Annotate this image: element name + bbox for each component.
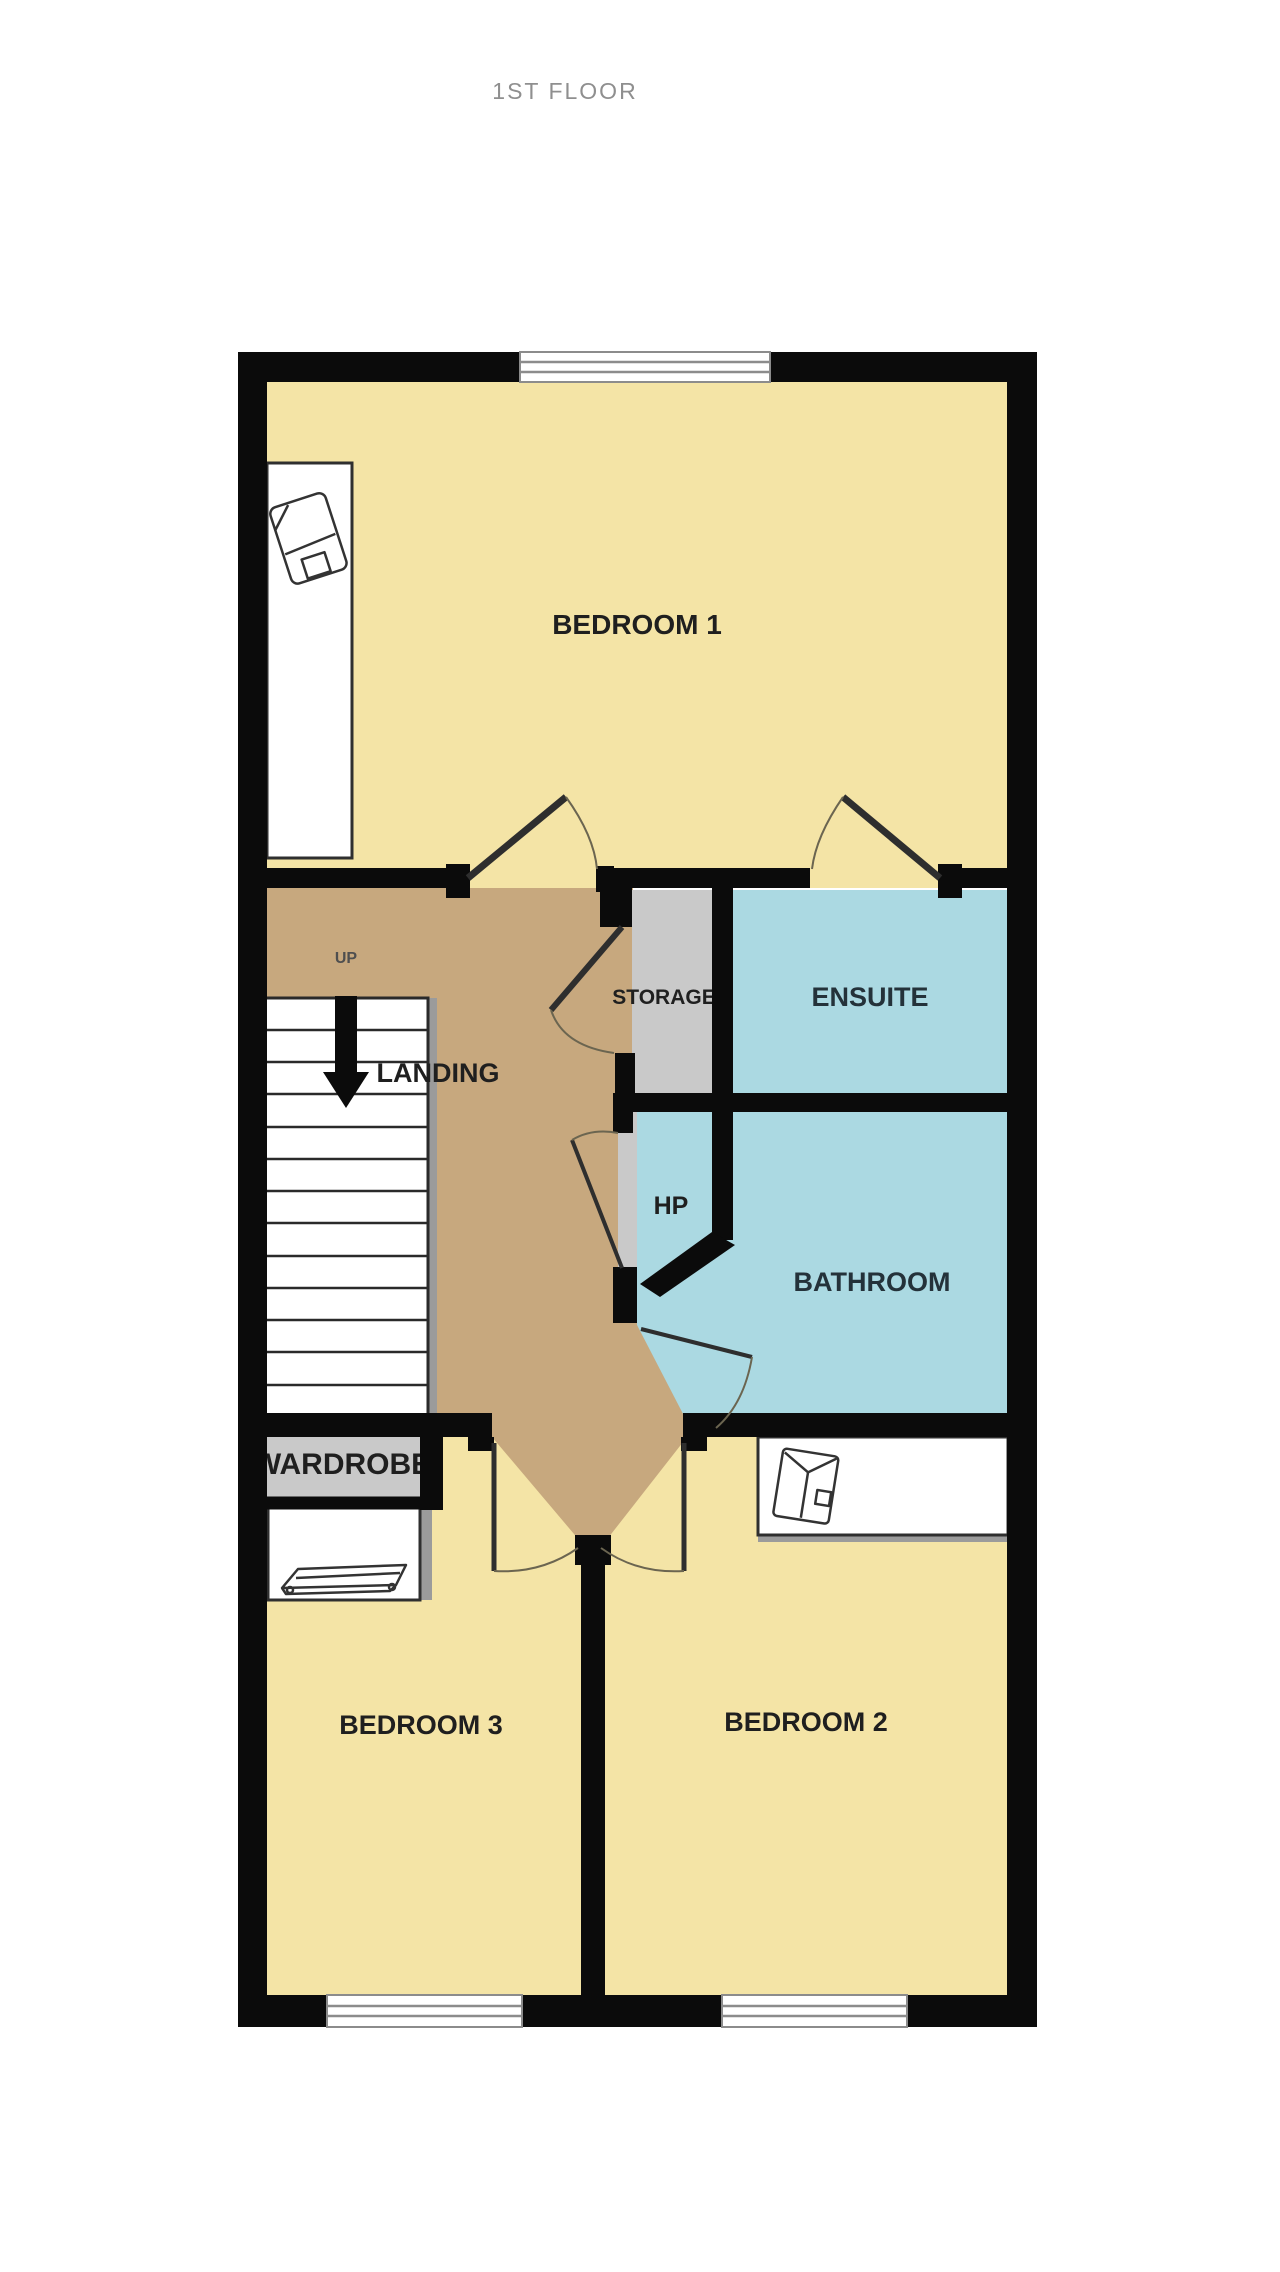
storage-label: STORAGE <box>612 986 715 1009</box>
window-bedroom3 <box>327 1995 522 2027</box>
bathroom-label: BATHROOM <box>794 1267 951 1297</box>
ensuite-label: ENSUITE <box>811 982 928 1012</box>
window-bedroom2 <box>722 1995 907 2027</box>
bedroom2-closet-box <box>758 1437 1008 1535</box>
chest-shadow <box>420 1510 432 1600</box>
floorplan-page: STORAGE WARDROBE <box>0 0 1280 2272</box>
bedroom2-label: BEDROOM 2 <box>724 1707 888 1737</box>
up-label: UP <box>335 950 358 967</box>
bedroom3-chest <box>268 1508 432 1600</box>
wardrobe-label: WARDROBE <box>253 1448 431 1481</box>
hp-label: HP <box>654 1192 689 1220</box>
page-title: 1ST FLOOR <box>492 78 637 104</box>
bedroom3-label: BEDROOM 3 <box>339 1710 503 1740</box>
floorplan-drawing: STORAGE WARDROBE <box>0 0 1280 2272</box>
window-bedroom1 <box>520 352 770 382</box>
landing-label: LANDING <box>377 1058 500 1088</box>
bedroom1-label: BEDROOM 1 <box>552 609 722 640</box>
bedroom2-closet <box>758 1437 1010 1542</box>
